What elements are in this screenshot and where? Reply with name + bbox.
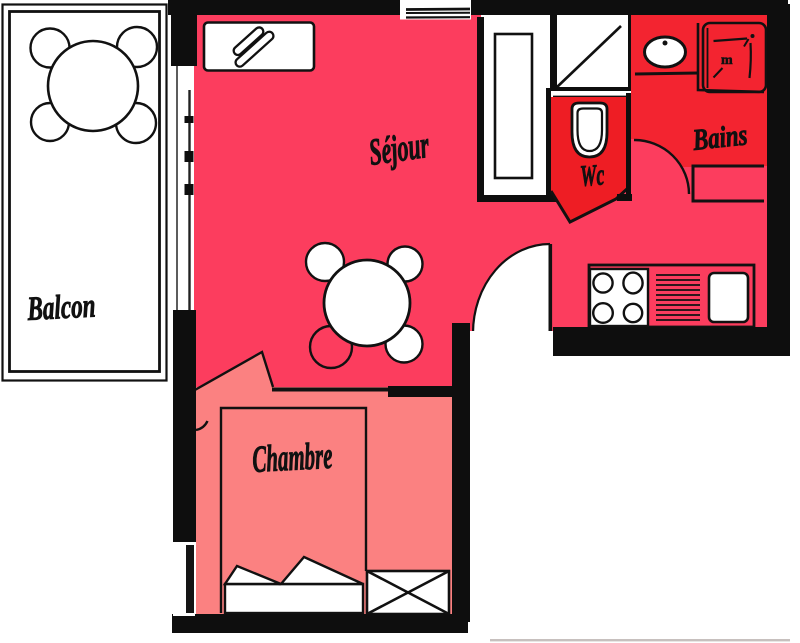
svg-text:Wc: Wc	[579, 159, 605, 193]
svg-text:m: m	[721, 53, 733, 68]
svg-text:Séjour: Séjour	[366, 123, 432, 174]
svg-text:Chambre: Chambre	[251, 434, 333, 480]
svg-text:Bains: Bains	[690, 117, 749, 156]
svg-text:Balcon: Balcon	[26, 287, 97, 328]
